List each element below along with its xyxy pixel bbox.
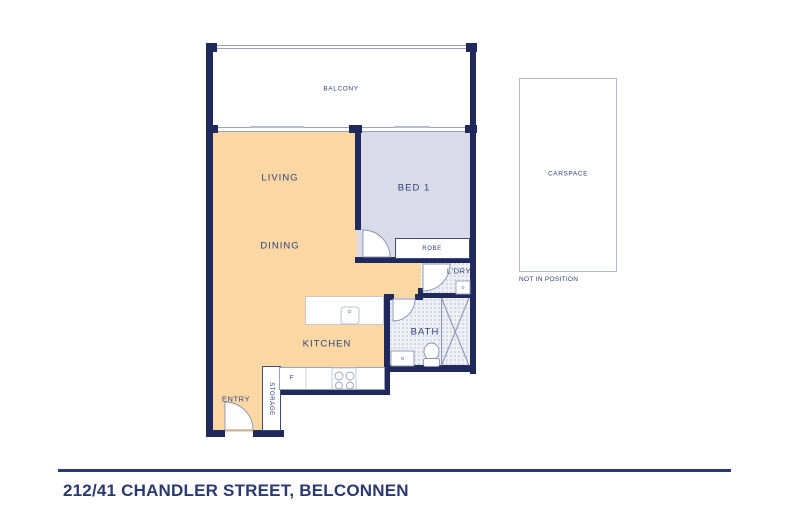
address-title: 212/41 CHANDLER STREET, BELCONNEN bbox=[63, 481, 409, 501]
cooktop bbox=[332, 368, 356, 389]
bed1-door bbox=[363, 230, 390, 257]
shower bbox=[442, 298, 470, 366]
toilet bbox=[424, 343, 440, 367]
bath-label: BATH bbox=[411, 327, 440, 338]
address-divider bbox=[58, 469, 731, 472]
fixtures-layer bbox=[0, 0, 790, 527]
carspace-label: CARSPACE bbox=[548, 171, 588, 178]
entry-label: ENTRY bbox=[222, 395, 250, 404]
robe-label: ROBE bbox=[422, 246, 441, 252]
fridge-label: F bbox=[290, 375, 295, 382]
laundry-label: L'DRY bbox=[447, 267, 471, 276]
balcony-label: BALCONY bbox=[323, 86, 358, 93]
living-label: LIVING bbox=[261, 173, 298, 184]
entry-door bbox=[225, 402, 253, 430]
dining-label: DINING bbox=[260, 241, 299, 252]
kitchen-label: KITCHEN bbox=[303, 339, 352, 350]
floorplan-canvas: BALCONY LIVING DINING BED 1 ROBE L'DRY B… bbox=[0, 0, 790, 527]
storage-label: STORAGE bbox=[268, 382, 274, 415]
vanity-basin bbox=[391, 351, 414, 366]
carspace-note: NOT IN POSITION bbox=[519, 276, 578, 283]
bath-door bbox=[393, 299, 415, 321]
island-sink bbox=[341, 307, 359, 324]
washer bbox=[456, 281, 470, 294]
bed1-label: BED 1 bbox=[398, 183, 430, 194]
